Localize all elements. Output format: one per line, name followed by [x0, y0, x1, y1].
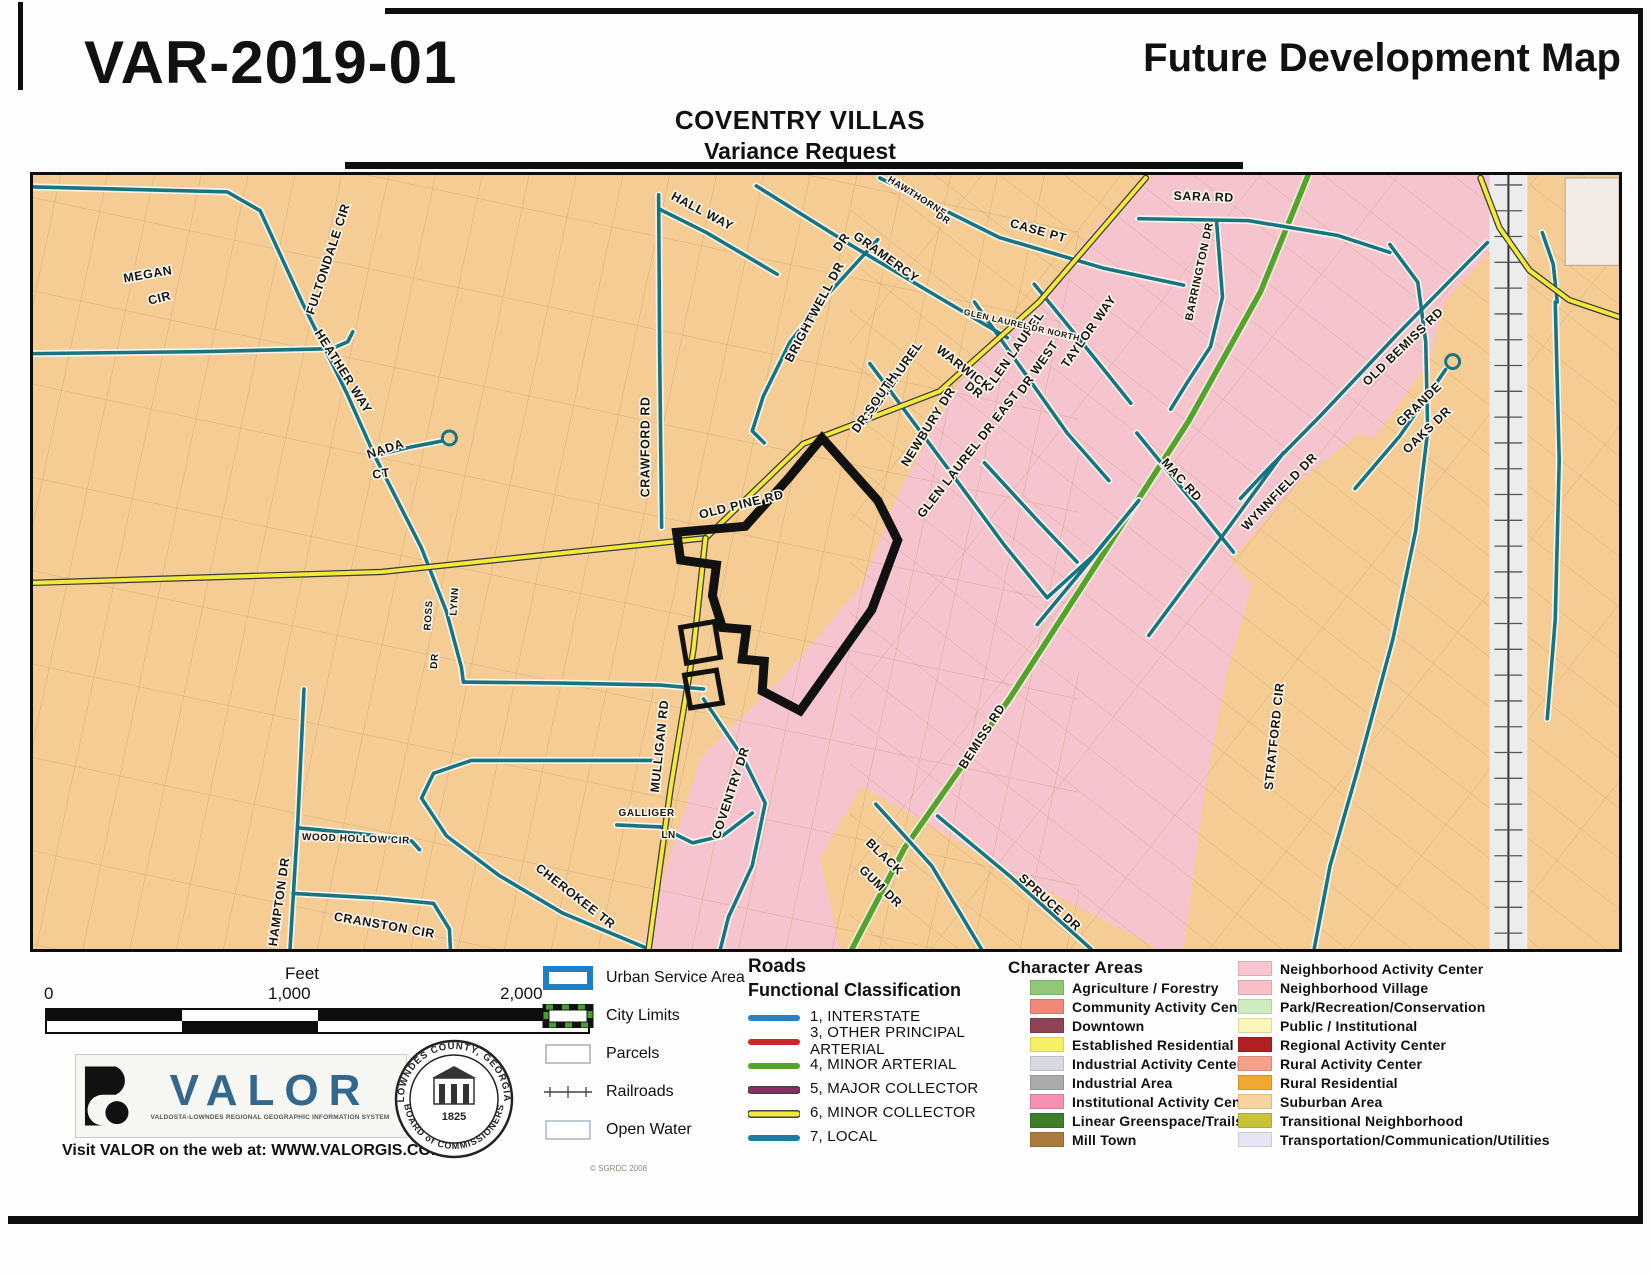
valor-logo: VALOR VALDOSTA-LOWNDES REGIONAL GEOGRAPH…	[75, 1054, 407, 1138]
road-class-swatch-icon	[748, 1083, 800, 1095]
character-area-item: Neighborhood Activity Center	[1238, 961, 1550, 976]
character-areas-col1: Agriculture / ForestryCommunity Activity…	[1030, 980, 1259, 1151]
character-area-swatch-icon	[1238, 961, 1272, 976]
valor-copyright: © SGRDC 2008	[590, 1164, 647, 1173]
rail-swatch-icon	[542, 1080, 594, 1104]
character-area-swatch-icon	[1030, 1113, 1064, 1128]
street-label: CT	[371, 466, 391, 482]
road-class-item: 6, MINOR COLLECTOR	[748, 1105, 1038, 1120]
character-area-swatch-icon	[1030, 999, 1064, 1014]
usa-swatch-icon	[542, 966, 594, 990]
street-label: GALLIGER	[619, 808, 675, 819]
character-area-swatch-icon	[1238, 1094, 1272, 1109]
character-area-item: Suburban Area	[1238, 1094, 1550, 1109]
legend-symbol-usa: Urban Service Area	[542, 966, 772, 990]
map-subtitle: COVENTRY VILLAS Variance Request	[520, 104, 1080, 165]
character-area-item: Agriculture / Forestry	[1030, 980, 1259, 995]
character-area-swatch-icon	[1030, 1075, 1064, 1090]
parcel-swatch-icon	[542, 1042, 594, 1066]
map-title: Future Development Map	[1143, 36, 1621, 81]
character-area-item: Established Residential	[1030, 1037, 1259, 1052]
road-class-item: 3, OTHER PRINCIPAL ARTERIAL	[748, 1033, 1038, 1048]
character-area-swatch-icon	[1238, 1037, 1272, 1052]
character-areas-title: Character Areas	[1008, 958, 1143, 978]
valor-tagline: VALDOSTA-LOWNDES REGIONAL GEOGRAPHIC INF…	[134, 1114, 406, 1121]
character-area-swatch-icon	[1238, 1075, 1272, 1090]
legend-symbol-parcel: Parcels	[542, 1042, 772, 1066]
character-area-item: Linear Greenspace/Trails	[1030, 1113, 1259, 1128]
street-label: DR	[429, 653, 441, 669]
character-area-item: Neighborhood Village	[1238, 980, 1550, 995]
character-areas-col2: Neighborhood Activity CenterNeighborhood…	[1238, 961, 1550, 1151]
road-class-swatch-icon	[748, 1059, 800, 1071]
road-class-swatch-icon	[748, 1035, 800, 1047]
title-underline	[345, 162, 1243, 169]
legend-symbols: Urban Service AreaCity LimitsParcelsRail…	[542, 966, 772, 1156]
character-area-item: Rural Activity Center	[1238, 1056, 1550, 1071]
road-class-swatch-icon	[748, 1131, 800, 1143]
character-area-swatch-icon	[1238, 1113, 1272, 1128]
character-area-item: Rural Residential	[1238, 1075, 1550, 1090]
street-label: CRAWFORD RD	[639, 396, 653, 497]
character-area-swatch-icon	[1030, 1018, 1064, 1033]
city-swatch-icon	[542, 1004, 594, 1028]
character-area-item: Regional Activity Center	[1238, 1037, 1550, 1052]
road-class-item: 7, LOCAL	[748, 1129, 1038, 1144]
road-class-item: 4, MINOR ARTERIAL	[748, 1057, 1038, 1072]
road-class-swatch-icon	[748, 1011, 800, 1023]
roads-legend-subtitle: Functional Classification	[748, 980, 1038, 1001]
legend-symbol-city: City Limits	[542, 1004, 772, 1028]
valor-web-address: Visit VALOR on the web at: WWW.VALORGIS.…	[62, 1142, 444, 1160]
street-label: ROSS	[422, 600, 435, 631]
road-class-item: 1, INTERSTATE	[748, 1009, 1038, 1024]
legend-strip: Feet 0 1,000 2,000 VALOR VALDOSTA-LOWNDE…	[30, 956, 1622, 1212]
scalebar-unit: Feet	[285, 964, 319, 984]
map-svg: MEGANCIRFULTONDALE CIRHEATHER WAYNADACTR…	[33, 175, 1619, 949]
page-border-left	[18, 2, 23, 90]
character-area-swatch-icon	[1030, 1037, 1064, 1052]
valor-glyph-icon	[82, 1064, 134, 1128]
map-canvas: MEGANCIRFULTONDALE CIRHEATHER WAYNADACTR…	[30, 172, 1622, 952]
page-border-top	[385, 8, 1643, 14]
character-area-item: Transportation/Communication/Utilities	[1238, 1132, 1550, 1147]
character-area-swatch-icon	[1238, 1018, 1272, 1033]
character-area-item: Public / Institutional	[1238, 1018, 1550, 1033]
character-area-swatch-icon	[1030, 980, 1064, 995]
county-seal: LOWNDES COUNTY, GEORGIA BOARD of COMMISS…	[392, 1034, 516, 1164]
water-swatch-icon	[542, 1118, 594, 1142]
character-area-item: Transitional Neighborhood	[1238, 1113, 1550, 1128]
character-area-swatch-icon	[1238, 1132, 1272, 1147]
scalebar	[45, 1008, 590, 1034]
legend-roads: Roads Functional Classification 1, INTER…	[748, 956, 1038, 1153]
character-area-item: Industrial Activity Center	[1030, 1056, 1259, 1071]
character-area-swatch-icon	[1238, 1056, 1272, 1071]
character-area-item: Park/Recreation/Conservation	[1238, 999, 1550, 1014]
character-area-swatch-icon	[1238, 980, 1272, 995]
character-area-item: Downtown	[1030, 1018, 1259, 1033]
scalebar-tick-1000: 1,000	[268, 984, 311, 1004]
subtitle-request-type: Variance Request	[520, 137, 1080, 166]
legend-symbol-water: Open Water	[542, 1118, 772, 1142]
subtitle-project-name: COVENTRY VILLAS	[520, 104, 1080, 137]
street-label: LYNN	[448, 587, 461, 616]
legend-symbol-rail: Railroads	[542, 1080, 772, 1104]
case-number-title: VAR-2019-01	[84, 28, 457, 97]
roads-legend-title: Roads	[748, 956, 1038, 978]
page-border-right	[1638, 8, 1643, 1218]
seal-year: 1825	[442, 1111, 466, 1123]
character-area-item: Mill Town	[1030, 1132, 1259, 1147]
character-area-swatch-icon	[1030, 1056, 1064, 1071]
street-label: LN	[661, 830, 675, 841]
scalebar-tick-0: 0	[44, 984, 53, 1004]
page-border-bottom	[8, 1216, 1643, 1224]
character-area-item: Community Activity Center	[1030, 999, 1259, 1014]
street-label: SARA RD	[1173, 189, 1234, 205]
character-area-item: Industrial Area	[1030, 1075, 1259, 1090]
valor-name: VALOR	[134, 1071, 406, 1111]
character-area-swatch-icon	[1238, 999, 1272, 1014]
road-class-swatch-icon	[748, 1107, 800, 1119]
character-area-swatch-icon	[1030, 1132, 1064, 1147]
character-area-swatch-icon	[1030, 1094, 1064, 1109]
scalebar-tick-2000: 2,000	[500, 984, 543, 1004]
road-class-item: 5, MAJOR COLLECTOR	[748, 1081, 1038, 1096]
scanned-map-page: VAR-2019-01 Future Development Map COVEN…	[0, 0, 1651, 1275]
character-area-item: Institutional Activity Center	[1030, 1094, 1259, 1109]
